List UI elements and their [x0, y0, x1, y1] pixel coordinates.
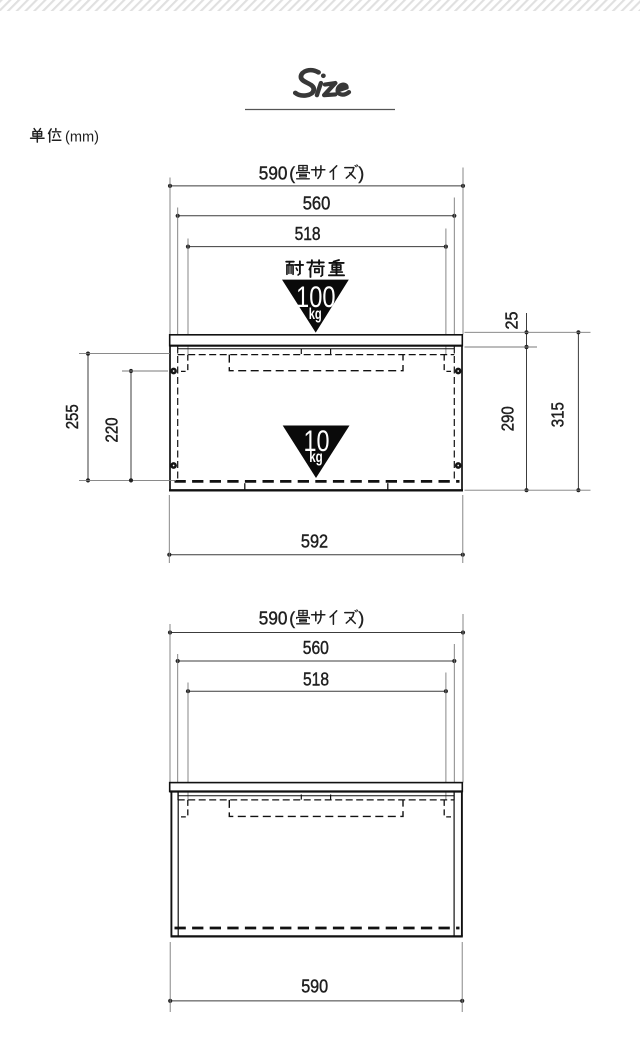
svg-text:25: 25	[502, 312, 522, 330]
svg-text:255: 255	[62, 404, 82, 429]
svg-text:590: 590	[301, 976, 328, 997]
svg-text:(: (	[289, 609, 295, 629]
svg-text:kg: kg	[309, 449, 323, 466]
svg-text:315: 315	[548, 402, 568, 427]
svg-text:592: 592	[301, 530, 328, 551]
svg-text:518: 518	[295, 223, 321, 244]
svg-text:560: 560	[303, 637, 329, 658]
svg-text:): )	[358, 164, 364, 184]
svg-text:kg: kg	[309, 306, 322, 323]
svg-text:220: 220	[102, 418, 122, 443]
svg-text:(mm): (mm)	[65, 130, 99, 146]
svg-text:518: 518	[303, 668, 329, 689]
svg-text:290: 290	[498, 406, 518, 431]
svg-text:590: 590	[259, 163, 288, 184]
svg-text:): )	[358, 609, 364, 629]
svg-text:560: 560	[303, 192, 331, 213]
svg-text:(: (	[289, 164, 295, 184]
svg-text:590: 590	[259, 608, 288, 629]
